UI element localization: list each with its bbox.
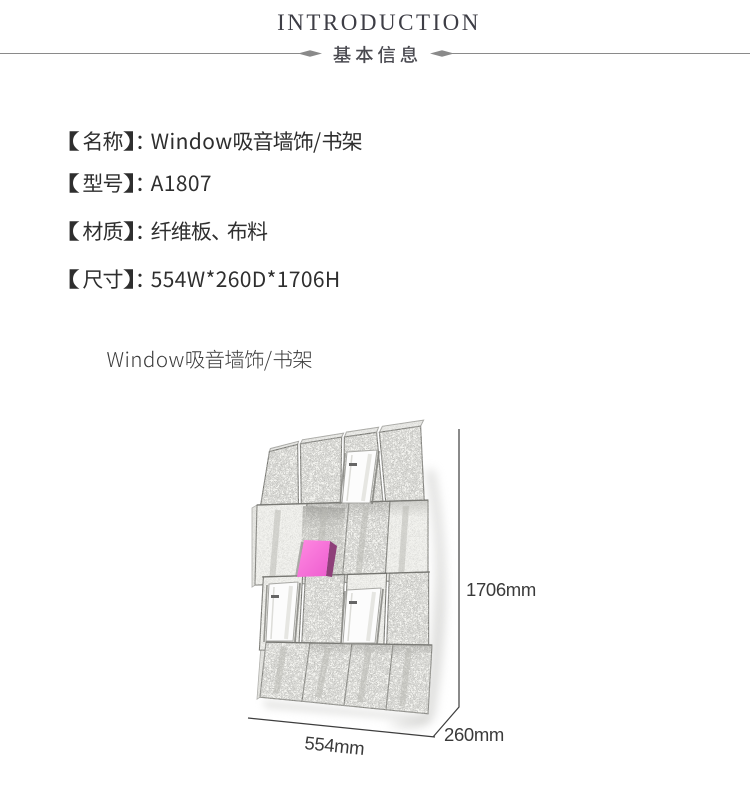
svg-text:554mm: 554mm: [304, 732, 366, 759]
svg-text:INTRODUCTION: INTRODUCTION: [277, 10, 481, 35]
svg-text:1706mm: 1706mm: [466, 579, 536, 600]
svg-text:260mm: 260mm: [444, 724, 504, 745]
